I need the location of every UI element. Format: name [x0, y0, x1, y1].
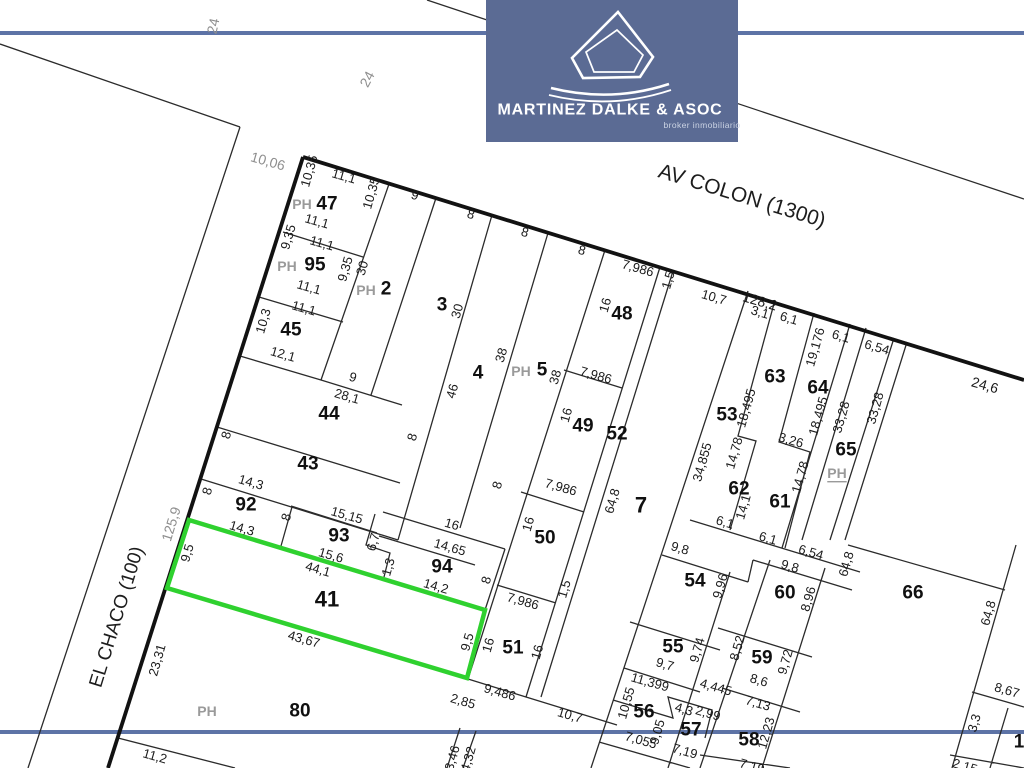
lot-number-43: 43	[297, 454, 318, 475]
lot-number-56: 56	[633, 702, 654, 723]
lot-number-47: 47	[316, 194, 337, 215]
lot-number-51: 51	[502, 638, 524, 659]
lot-number-1: 1	[1014, 732, 1024, 753]
ph-label: PH	[292, 196, 311, 212]
lot-number-60: 60	[774, 583, 795, 604]
lot-number-92: 92	[235, 495, 256, 516]
lot-number-48: 48	[611, 304, 632, 325]
lot-number-57: 57	[680, 720, 701, 741]
lot-number-64: 64	[807, 378, 829, 399]
ph-label: PH	[197, 703, 216, 719]
lot-number-55: 55	[662, 637, 684, 658]
logo-title: MARTINEZ DALKE & ASOC	[497, 102, 722, 119]
lot-number-94: 94	[431, 557, 453, 578]
ph-label: PH	[277, 258, 296, 274]
lot-number-80: 80	[289, 701, 310, 722]
lot-number-61: 61	[769, 492, 791, 513]
lot-number-63: 63	[764, 367, 785, 388]
ph-label: PH	[356, 282, 375, 298]
lot-number-49: 49	[572, 416, 593, 437]
ph-label: PH	[827, 465, 846, 481]
lot-number-95: 95	[304, 255, 326, 276]
lot-number-3: 3	[437, 295, 448, 316]
lot-number-44: 44	[318, 404, 340, 425]
lot-number-50: 50	[534, 528, 555, 549]
logo: MARTINEZ DALKE & ASOC broker inmobiliari…	[486, 0, 741, 142]
lot-number-66: 66	[902, 583, 923, 604]
lot-number-7: 7	[635, 493, 647, 518]
lot-number-2: 2	[381, 279, 392, 300]
lot-number-54: 54	[684, 571, 706, 592]
lot-number-45: 45	[280, 320, 302, 341]
lot-number-52: 52	[606, 424, 627, 445]
lot-number-4: 4	[473, 363, 484, 384]
lot-number-59: 59	[751, 648, 772, 669]
lot-number-5: 5	[537, 360, 548, 381]
lot-number-93: 93	[328, 526, 349, 547]
lot-number-65: 65	[835, 440, 857, 461]
cadastral-map: AV COLON (1300)EL CHACO (100)242410,0612…	[0, 0, 1024, 768]
logo-subtitle: broker inmobiliario	[663, 120, 740, 130]
ph-label: PH	[511, 363, 530, 379]
lot-number-41: 41	[315, 587, 339, 612]
